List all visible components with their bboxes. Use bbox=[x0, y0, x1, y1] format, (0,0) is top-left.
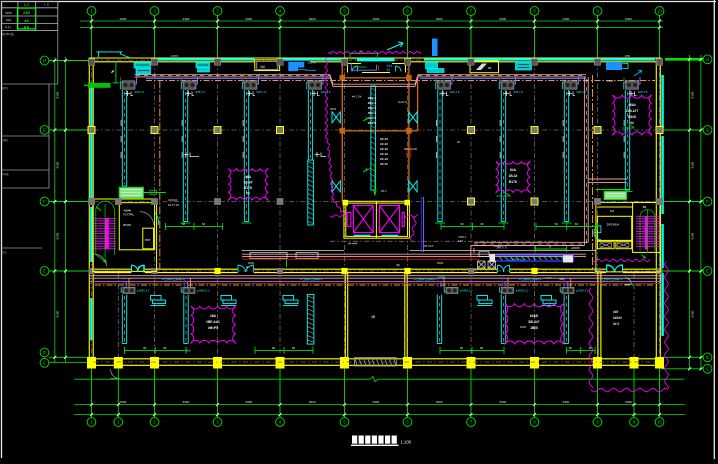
svg-text:6300: 6300 bbox=[499, 17, 506, 21]
svg-text:6#: 6# bbox=[555, 222, 559, 226]
svg-text:#B#-#: #B#-# bbox=[368, 121, 377, 125]
svg-text:G: G bbox=[43, 128, 46, 133]
svg-text:##: ## bbox=[457, 140, 461, 144]
svg-text:4B: 4B bbox=[371, 315, 376, 319]
svg-text:1B-3#: 1B-3# bbox=[509, 174, 518, 178]
svg-text:1B#5: 1B#5 bbox=[530, 326, 538, 330]
svg-text:####: #### bbox=[437, 261, 444, 265]
svg-text:6#: 6# bbox=[202, 222, 206, 226]
svg-text:6300: 6300 bbox=[436, 17, 443, 21]
svg-text:6#: 6# bbox=[182, 222, 186, 226]
svg-text:B#: B# bbox=[643, 205, 647, 209]
svg-text:# # L: # # L bbox=[5, 25, 12, 29]
svg-text:B17S: B17S bbox=[509, 180, 517, 184]
svg-text:8100: 8100 bbox=[691, 232, 695, 239]
svg-text:6#AD: 6#AD bbox=[530, 314, 539, 318]
svg-text:8100: 8100 bbox=[56, 91, 60, 98]
svg-text:#P#-1(M#): #P#-1(M#) bbox=[404, 147, 417, 151]
svg-text:#6A: #6A bbox=[245, 175, 252, 179]
svg-text:6#A: 6#A bbox=[510, 168, 517, 172]
svg-text:8100: 8100 bbox=[56, 232, 60, 239]
svg-text:C 2: C 2 bbox=[24, 3, 29, 7]
svg-text:240: 240 bbox=[23, 10, 30, 15]
svg-text:B17S: B17S bbox=[244, 186, 252, 190]
svg-text:B1#5: B1#5 bbox=[628, 115, 636, 119]
svg-text:▲M5A 2.2: ▲M5A 2.2 bbox=[197, 289, 210, 293]
svg-text:8#: 8# bbox=[480, 346, 484, 350]
svg-text:#P(##: #P(## bbox=[123, 223, 131, 227]
svg-text:#BP-A#C: #BP-A#C bbox=[206, 320, 220, 324]
svg-text:##-#: ##-# bbox=[381, 189, 387, 193]
svg-text:B.: B. bbox=[549, 245, 552, 249]
svg-text:PP#: PP# bbox=[145, 238, 151, 242]
svg-text:▲M5A 2.2: ▲M5A 2.2 bbox=[460, 289, 473, 293]
svg-text:LDM4=PLUS: LDM4=PLUS bbox=[508, 258, 526, 262]
svg-text:6300: 6300 bbox=[245, 17, 252, 21]
svg-text:## #1#: ## #1# bbox=[424, 244, 434, 248]
svg-text:#25-1.5: #25-1.5 bbox=[196, 90, 206, 94]
svg-text:H: H bbox=[43, 58, 46, 63]
svg-text:####: #### bbox=[5, 11, 12, 15]
svg-text:#B#-#: #B#-# bbox=[368, 96, 377, 100]
svg-text:(M): (M) bbox=[186, 349, 191, 353]
svg-text:8#: 8# bbox=[272, 346, 276, 350]
svg-text:6300: 6300 bbox=[563, 400, 570, 404]
svg-text:DPZH1M: DPZH1M bbox=[607, 223, 620, 227]
svg-text:6300: 6300 bbox=[436, 400, 443, 404]
svg-text:8#: 8# bbox=[163, 346, 167, 350]
svg-text:8#: 8# bbox=[143, 346, 147, 350]
svg-text:CLPM: CLPM bbox=[308, 61, 317, 65]
svg-text:1##: 1## bbox=[458, 239, 463, 243]
svg-text:####: #### bbox=[248, 261, 255, 265]
svg-text:FLTPAL: FLTPAL bbox=[124, 213, 135, 217]
svg-text:##-1#: ##-1# bbox=[380, 152, 388, 156]
svg-text:#25-1.5: #25-1.5 bbox=[638, 90, 648, 94]
svg-text:#25-1.5: #25-1.5 bbox=[514, 90, 524, 94]
svg-text:D: D bbox=[706, 355, 709, 360]
svg-text:WTRXE: WTRXE bbox=[2, 33, 15, 37]
svg-text:##-1#: ##-1# bbox=[380, 157, 388, 161]
svg-text:▲M5A 2.2: ▲M5A 2.2 bbox=[515, 289, 528, 293]
svg-text:= LDM4-LDM4A =: = LDM4-LDM4A = bbox=[300, 277, 323, 281]
svg-text:##-1#: ##-1# bbox=[380, 142, 388, 146]
svg-text:C: C bbox=[43, 360, 46, 365]
svg-text:H: H bbox=[706, 57, 709, 62]
svg-text:##: ## bbox=[387, 68, 391, 72]
svg-text:#6A: #6A bbox=[210, 314, 217, 318]
svg-text:6300: 6300 bbox=[309, 17, 316, 21]
svg-text:1#1 X.7|: 1#1 X.7| bbox=[496, 245, 507, 249]
svg-text:10: 10 bbox=[657, 9, 662, 14]
svg-text:8100: 8100 bbox=[56, 161, 60, 168]
svg-text:1##A: 1##A bbox=[607, 79, 614, 83]
svg-text:6300: 6300 bbox=[183, 17, 190, 21]
svg-text:(M): (M) bbox=[396, 263, 401, 267]
svg-text:6#: 6# bbox=[461, 222, 465, 226]
svg-text:8#: 8# bbox=[292, 346, 296, 350]
svg-text:ILE: ILE bbox=[2, 251, 7, 255]
svg-text:+ C: + C bbox=[44, 3, 50, 7]
svg-text:= LDM4-LDM4A =: = LDM4-LDM4A = bbox=[414, 277, 437, 281]
svg-text:= LDM4-LDM4A =: = LDM4-LDM4A = bbox=[519, 277, 542, 281]
svg-text:8#: 8# bbox=[460, 346, 464, 350]
svg-text:D: D bbox=[43, 350, 46, 355]
svg-text:## 2.5#: ## 2.5# bbox=[352, 95, 362, 99]
svg-text:44: 44 bbox=[24, 18, 29, 23]
svg-text:6#: 6# bbox=[481, 222, 485, 226]
svg-text:## ###: ## ### bbox=[348, 241, 358, 245]
svg-text:##-1#: ##-1# bbox=[380, 162, 388, 166]
svg-text:#o#A•#: #o#A•# bbox=[398, 100, 408, 104]
svg-text:BPE: BPE bbox=[2, 87, 8, 91]
svg-text:##-1#: ##-1# bbox=[380, 147, 388, 151]
svg-text:###: ### bbox=[560, 277, 565, 281]
svg-text:1M: 1M bbox=[610, 209, 615, 213]
svg-text:= LDM4-LDM4A =: = LDM4-LDM4A = bbox=[162, 277, 185, 281]
svg-text:F: F bbox=[706, 199, 709, 204]
svg-text:= LDM4-LDM4A =: = LDM4-LDM4A = bbox=[600, 277, 623, 281]
svg-text:##: ## bbox=[246, 192, 250, 196]
svg-text:1##2#3: 1##2#3 bbox=[168, 198, 178, 202]
svg-text:10: 10 bbox=[657, 420, 662, 425]
svg-text:JME: JME bbox=[2, 139, 8, 143]
svg-text:6300: 6300 bbox=[373, 400, 380, 404]
svg-text:8100: 8100 bbox=[691, 310, 695, 317]
svg-text:#6A#: #6A# bbox=[628, 103, 636, 107]
svg-text:###: ### bbox=[613, 310, 619, 314]
svg-text:6300: 6300 bbox=[183, 400, 190, 404]
svg-text:▲M5A 2.2: ▲M5A 2.2 bbox=[137, 289, 150, 293]
svg-text:8#: 8# bbox=[569, 346, 573, 350]
svg-text:8#: 8# bbox=[589, 346, 593, 350]
svg-text:6300: 6300 bbox=[120, 17, 127, 21]
svg-text:6300: 6300 bbox=[245, 400, 252, 404]
svg-text:#B#-#: #B#-# bbox=[368, 111, 377, 115]
svg-text:6300: 6300 bbox=[120, 400, 127, 404]
svg-text:PME: PME bbox=[2, 173, 9, 177]
svg-text:1B-3#: 1B-3# bbox=[244, 181, 253, 185]
svg-text:6300: 6300 bbox=[499, 400, 506, 404]
svg-text:E: E bbox=[706, 269, 709, 274]
svg-text:8 6: 8 6 bbox=[24, 25, 30, 30]
svg-text:8100: 8100 bbox=[691, 91, 695, 98]
svg-text:F: F bbox=[43, 199, 46, 204]
svg-text:#25-1.5: #25-1.5 bbox=[577, 90, 587, 94]
svg-text:#####: ##### bbox=[613, 316, 622, 320]
svg-text:6300: 6300 bbox=[563, 17, 570, 21]
svg-text:####: #### bbox=[520, 325, 527, 329]
svg-text:FXTX: FXTX bbox=[171, 54, 178, 58]
svg-text:#B#-#: #B#-# bbox=[368, 106, 377, 110]
svg-text:8100: 8100 bbox=[56, 310, 60, 317]
svg-text:##: ## bbox=[630, 121, 634, 125]
svg-text:###: ### bbox=[6, 18, 12, 22]
svg-text:G: G bbox=[706, 128, 709, 133]
svg-text:####: #### bbox=[330, 107, 337, 111]
svg-text:#25-1.5: #25-1.5 bbox=[135, 90, 145, 94]
svg-text:2#B-1#T: 2#B-1#T bbox=[626, 109, 638, 113]
svg-text:#25-1.5: #25-1.5 bbox=[257, 90, 267, 94]
svg-text:6300: 6300 bbox=[373, 17, 380, 21]
svg-text:+#####: +##### bbox=[570, 246, 580, 250]
svg-text:#B#-#: #B#-# bbox=[368, 101, 377, 105]
svg-text:##: ## bbox=[488, 66, 492, 70]
svg-text:##-1#: ##-1# bbox=[380, 137, 388, 141]
svg-text:1M: 1M bbox=[260, 65, 265, 69]
svg-text:C: C bbox=[706, 366, 709, 371]
svg-text:#M<P5: #M<P5 bbox=[208, 326, 218, 330]
svg-text:6300: 6300 bbox=[625, 400, 632, 404]
svg-text:## #7.##: ## #7.## bbox=[168, 203, 179, 207]
svg-text:1:100: 1:100 bbox=[401, 440, 412, 445]
svg-text:8100: 8100 bbox=[691, 161, 695, 168]
svg-text:BD-3#7: BD-3#7 bbox=[529, 320, 540, 324]
svg-text:## #: ## # bbox=[613, 322, 619, 326]
svg-text:#T#: #T# bbox=[625, 54, 630, 58]
svg-text:▲M5A 2.2: ▲M5A 2.2 bbox=[576, 289, 589, 293]
svg-text:6300: 6300 bbox=[625, 17, 632, 21]
svg-text:#25-1.5: #25-1.5 bbox=[450, 90, 460, 94]
svg-text:6#: 6# bbox=[575, 222, 579, 226]
svg-text:6300: 6300 bbox=[309, 400, 316, 404]
svg-text:E: E bbox=[43, 269, 46, 274]
